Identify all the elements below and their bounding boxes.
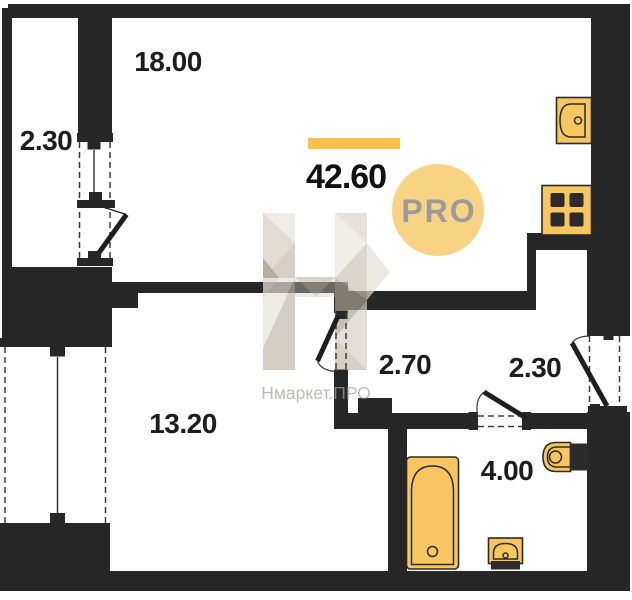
floorplan-svg: Нмаркет.ПРО: [0, 0, 632, 600]
room-label-entry-hall: 2.30: [509, 352, 562, 383]
room-label-bathroom: 4.00: [481, 455, 534, 486]
washbasin-icon: [489, 538, 523, 570]
room-label-hallway: 2.70: [379, 349, 432, 380]
floorplan-image: Нмаркет.ПРО: [0, 0, 632, 600]
pro-badge-label: PRO: [401, 193, 476, 229]
room-label-balcony: 2.30: [20, 125, 73, 156]
total-area-value: 42.60: [306, 158, 386, 196]
room-label-living-kitchen: 18.00: [134, 46, 202, 77]
kitchen-sink-icon: [557, 98, 592, 144]
room-label-room: 13.20: [149, 408, 217, 439]
watermark-text: Нмаркет.ПРО: [261, 383, 371, 403]
toilet-icon: [543, 443, 588, 472]
bathtub-icon: [407, 457, 459, 569]
accent-bar: [308, 138, 400, 149]
stove-icon: [542, 186, 592, 236]
